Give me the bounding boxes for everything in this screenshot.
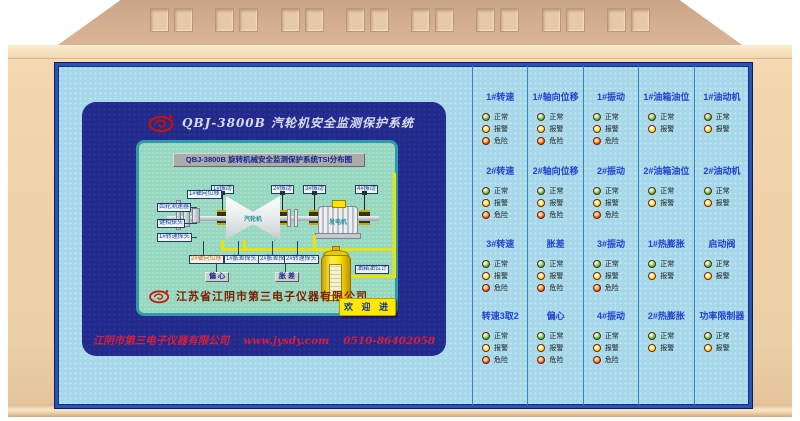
indicator-group: 2#转速正常报警危险: [473, 165, 527, 221]
led-row: 危险: [528, 209, 582, 221]
led-label: 正常: [605, 112, 619, 122]
vent-row: [150, 8, 650, 32]
leader-line: [185, 223, 197, 224]
danger-led-icon: [593, 137, 601, 145]
led-row: 危险: [473, 209, 527, 221]
alarm-led-icon: [704, 344, 712, 352]
leader-line: [238, 241, 239, 255]
normal-led-icon: [537, 113, 545, 121]
alarm-led-icon: [537, 344, 545, 352]
led-label: 正常: [660, 331, 674, 341]
normal-led-icon: [593, 187, 601, 195]
led-label: 正常: [605, 331, 619, 341]
indicator-group-title: 3#振动: [584, 238, 638, 250]
brand-logo-icon: [148, 114, 175, 133]
front-flange: [192, 208, 200, 223]
indicator-group: 转速3取2正常报警危险: [473, 310, 527, 366]
normal-led-icon: [648, 187, 656, 195]
led-label: 报警: [716, 198, 730, 208]
indicator-group: 3#振动正常报警危险: [584, 238, 638, 294]
vent-slot: [607, 8, 626, 32]
led-label: 正常: [549, 112, 563, 122]
leader-line: [203, 241, 204, 255]
indicator-group: 1#热膨胀正常报警: [639, 238, 693, 282]
led-row: 正常: [639, 185, 693, 197]
led-row: 报警: [584, 123, 638, 135]
led-label: 危险: [605, 210, 619, 220]
indicator-group-title: 2#油动机: [695, 165, 749, 177]
indicator-group-title: 1#油箱油位: [639, 91, 693, 103]
indicator-group-title: 2#轴向位移: [528, 165, 582, 177]
probe-label: 齿轮测速器: [157, 203, 191, 212]
oil-pipe: [313, 235, 316, 249]
indicator-column: 1#转速正常报警危险2#转速正常报警危险3#转速正常报警危险转速3取2正常报警危…: [472, 66, 527, 405]
vent-group: [411, 8, 454, 32]
led-row: 正常: [695, 258, 749, 270]
screen-footer-line: 江阴市第三电子仪器有限公司www.jysdy.com0510-86402058: [82, 333, 446, 348]
led-row: 正常: [639, 330, 693, 342]
led-label: 报警: [660, 271, 674, 281]
alarm-led-icon: [648, 344, 656, 352]
indicator-group: 2#振动正常报警危险: [584, 165, 638, 221]
led-row: 报警: [639, 342, 693, 354]
sensor-pin: [222, 192, 223, 211]
led-row: 正常: [584, 330, 638, 342]
led-label: 报警: [660, 124, 674, 134]
indicator-group-title: 启动阀: [695, 238, 749, 250]
alarm-led-icon: [593, 344, 601, 352]
device-top-lid: [55, 0, 745, 47]
danger-led-icon: [537, 284, 545, 292]
indicator-column: 1#轴向位移正常报警危险2#轴向位移正常报警危险胀差正常报警危险偏心正常报警危险: [527, 66, 582, 405]
alarm-led-icon: [704, 272, 712, 280]
led-row: 报警: [528, 123, 582, 135]
indicator-group-title: 偏心: [528, 310, 582, 322]
vent-slot: [435, 8, 454, 32]
led-row: 危险: [473, 282, 527, 294]
normal-led-icon: [593, 260, 601, 268]
indicator-group: 2#轴向位移正常报警危险: [528, 165, 582, 221]
led-label: 危险: [549, 355, 563, 365]
led-row: 正常: [528, 258, 582, 270]
alarm-led-icon: [648, 272, 656, 280]
led-label: 报警: [494, 271, 508, 281]
crt-screen: QBJ-3800B 汽轮机安全监测保护系统 QBJ-3800B 旋转机械安全监测…: [82, 102, 446, 356]
led-label: 报警: [716, 343, 730, 353]
normal-led-icon: [593, 113, 601, 121]
led-row: 报警: [695, 197, 749, 209]
led-label: 报警: [716, 271, 730, 281]
alarm-led-icon: [593, 199, 601, 207]
screen-header: QBJ-3800B 汽轮机安全监测保护系统: [82, 112, 446, 136]
coupling: [294, 209, 298, 227]
led-row: 报警: [639, 197, 693, 209]
front-top-band: [8, 45, 792, 59]
indicator-group: 功率限制器正常报警: [695, 310, 749, 354]
danger-led-icon: [593, 284, 601, 292]
vent-slot: [215, 8, 234, 32]
led-label: 正常: [716, 112, 730, 122]
normal-led-icon: [648, 260, 656, 268]
led-row: 报警: [528, 342, 582, 354]
indicator-group: 偏心正常报警危险: [528, 310, 582, 366]
normal-led-icon: [648, 113, 656, 121]
alarm-led-icon: [704, 199, 712, 207]
company-logo-icon: [147, 289, 172, 304]
led-label: 正常: [660, 259, 674, 269]
probe-label: 1#胀差探头: [224, 255, 259, 264]
led-label: 报警: [494, 198, 508, 208]
led-row: 正常: [639, 111, 693, 123]
indicator-group-title: 1#热膨胀: [639, 238, 693, 250]
normal-led-icon: [704, 260, 712, 268]
led-row: 正常: [528, 185, 582, 197]
led-row: 正常: [584, 111, 638, 123]
indicator-group: 2#油动机正常报警: [695, 165, 749, 209]
normal-led-icon: [648, 332, 656, 340]
led-row: 危险: [584, 354, 638, 366]
vent-slot: [305, 8, 324, 32]
indicator-group: 3#转速正常报警危险: [473, 238, 527, 294]
led-row: 报警: [584, 197, 638, 209]
indicator-group-title: 转速3取2: [473, 310, 527, 322]
indicator-group-title: 胀差: [528, 238, 582, 250]
indicator-group: 1#油动机正常报警: [695, 91, 749, 135]
normal-led-icon: [482, 332, 490, 340]
led-row: 报警: [695, 123, 749, 135]
alarm-led-icon: [593, 125, 601, 133]
vent-slot: [411, 8, 430, 32]
vent-slot: [476, 8, 495, 32]
alarm-led-icon: [648, 199, 656, 207]
probe-label: 1#转速探头: [157, 233, 192, 242]
indicator-group: 4#振动正常报警危险: [584, 310, 638, 366]
led-row: 报警: [473, 123, 527, 135]
led-label: 危险: [605, 283, 619, 293]
led-label: 正常: [716, 259, 730, 269]
vent-slot: [566, 8, 585, 32]
indicator-group-title: 1#转速: [473, 91, 527, 103]
alarm-led-icon: [537, 272, 545, 280]
indicator-column: 1#油箱油位正常报警2#油箱油位正常报警1#热膨胀正常报警2#热膨胀正常报警: [638, 66, 693, 405]
normal-led-icon: [482, 260, 490, 268]
vent-slot: [346, 8, 365, 32]
indicator-group-title: 功率限制器: [695, 310, 749, 322]
normal-led-icon: [537, 187, 545, 195]
vent-group: [476, 8, 519, 32]
led-label: 危险: [605, 355, 619, 365]
led-label: 正常: [549, 259, 563, 269]
led-label: 报警: [549, 124, 563, 134]
indicator-group-title: 2#转速: [473, 165, 527, 177]
led-label: 报警: [605, 271, 619, 281]
led-row: 报警: [584, 342, 638, 354]
led-row: 正常: [473, 330, 527, 342]
led-row: 报警: [473, 342, 527, 354]
vent-group: [607, 8, 650, 32]
danger-led-icon: [482, 137, 490, 145]
indicator-group-title: 1#振动: [584, 91, 638, 103]
danger-led-icon: [537, 356, 545, 364]
vent-slot: [150, 8, 169, 32]
alarm-led-icon: [537, 199, 545, 207]
led-label: 报警: [605, 198, 619, 208]
led-row: 危险: [528, 354, 582, 366]
vent-slot: [239, 8, 258, 32]
led-label: 正常: [494, 259, 508, 269]
footer-company: 江阴市第三电子仪器有限公司: [93, 335, 230, 347]
probe-label: 2#转速探头: [284, 255, 319, 264]
led-label: 正常: [494, 331, 508, 341]
indicator-group-title: 2#油箱油位: [639, 165, 693, 177]
led-label: 正常: [660, 186, 674, 196]
led-label: 危险: [494, 355, 508, 365]
indicator-group-title: 3#转速: [473, 238, 527, 250]
measure-box-label: 偏 心: [205, 272, 229, 282]
led-label: 正常: [716, 186, 730, 196]
vent-group: [150, 8, 193, 32]
vent-slot: [281, 8, 300, 32]
led-row: 正常: [473, 258, 527, 270]
oil-tank-cap: [332, 246, 340, 251]
alarm-led-icon: [704, 125, 712, 133]
normal-led-icon: [537, 260, 545, 268]
turbine-label: 汽轮机: [226, 214, 280, 223]
instrument-panel: QBJ-3800B 汽轮机安全监测保护系统 QBJ-3800B 旋转机械安全监测…: [55, 63, 752, 408]
indicator-columns: 1#转速正常报警危险2#转速正常报警危险3#转速正常报警危险转速3取2正常报警危…: [472, 66, 749, 405]
led-row: 正常: [473, 185, 527, 197]
danger-led-icon: [482, 284, 490, 292]
generator-top-box: [332, 200, 346, 208]
vent-slot: [500, 8, 519, 32]
vent-slot: [174, 8, 193, 32]
led-label: 正常: [549, 331, 563, 341]
tank-label: 油箱油位计: [355, 265, 389, 274]
led-row: 危险: [584, 282, 638, 294]
led-label: 正常: [716, 331, 730, 341]
coupling: [287, 209, 291, 227]
normal-led-icon: [537, 332, 545, 340]
led-row: 报警: [584, 270, 638, 282]
indicator-group: 1#振动正常报警危险: [584, 91, 638, 147]
sensor-pin: [282, 192, 283, 211]
led-label: 正常: [549, 186, 563, 196]
indicator-group: 2#油箱油位正常报警: [639, 165, 693, 209]
generator-base: [315, 233, 361, 239]
led-label: 报警: [549, 198, 563, 208]
led-label: 报警: [494, 124, 508, 134]
vent-slot: [370, 8, 389, 32]
vent-slot: [542, 8, 561, 32]
led-row: 报警: [639, 123, 693, 135]
led-row: 危险: [473, 354, 527, 366]
vent-group: [281, 8, 324, 32]
probe-label: 2#轴向位移: [189, 255, 224, 264]
normal-led-icon: [593, 332, 601, 340]
shaft-segment: [280, 216, 320, 221]
led-row: 危险: [528, 135, 582, 147]
led-label: 危险: [494, 136, 508, 146]
led-label: 正常: [494, 112, 508, 122]
indicator-group-title: 1#油动机: [695, 91, 749, 103]
led-row: 报警: [473, 197, 527, 209]
led-row: 报警: [695, 270, 749, 282]
led-label: 正常: [660, 112, 674, 122]
led-row: 危险: [584, 135, 638, 147]
shaft-segment: [358, 216, 379, 221]
normal-led-icon: [704, 332, 712, 340]
led-row: 危险: [473, 135, 527, 147]
indicator-group: 2#热膨胀正常报警: [639, 310, 693, 354]
led-row: 报警: [639, 270, 693, 282]
normal-led-icon: [482, 113, 490, 121]
indicator-group-title: 1#轴向位移: [528, 91, 582, 103]
leader-line: [285, 263, 286, 272]
sensor-pin: [364, 192, 365, 211]
normal-led-icon: [704, 187, 712, 195]
vent-group: [346, 8, 389, 32]
indicator-group: 胀差正常报警危险: [528, 238, 582, 294]
vent-slot: [631, 8, 650, 32]
led-row: 正常: [584, 258, 638, 270]
footer-phone: 0510-86402058: [343, 335, 435, 347]
device: QBJ-3800B 汽轮机安全监测保护系统 QBJ-3800B 旋转机械安全监测…: [0, 0, 800, 421]
led-label: 报警: [716, 124, 730, 134]
led-row: 正常: [695, 185, 749, 197]
indicator-column: 1#振动正常报警危险2#振动正常报警危险3#振动正常报警危险4#振动正常报警危险: [583, 66, 638, 405]
vent-group: [215, 8, 258, 32]
alarm-led-icon: [482, 272, 490, 280]
indicator-group: 1#油箱油位正常报警: [639, 91, 693, 135]
oil-pipe: [243, 240, 246, 249]
axial-displacement-label: 1#轴向位移: [187, 190, 222, 199]
indicator-group-title: 4#振动: [584, 310, 638, 322]
welcome-enter-button[interactable]: 欢 迎 进 入: [339, 298, 396, 316]
oil-pipe: [393, 173, 396, 278]
leader-line: [272, 241, 273, 255]
alarm-led-icon: [648, 125, 656, 133]
led-row: 报警: [473, 270, 527, 282]
alarm-led-icon: [482, 199, 490, 207]
company-row: 江苏省江阴市第三电子仪器有限公司: [147, 288, 368, 304]
indicator-group-title: 2#振动: [584, 165, 638, 177]
indicator-group: 1#轴向位移正常报警危险: [528, 91, 582, 147]
indicator-group: 1#转速正常报警危险: [473, 91, 527, 147]
led-label: 正常: [605, 259, 619, 269]
led-row: 正常: [639, 258, 693, 270]
vent-group: [542, 8, 585, 32]
alarm-led-icon: [482, 125, 490, 133]
led-label: 报警: [605, 343, 619, 353]
led-label: 报警: [660, 198, 674, 208]
led-row: 危险: [584, 209, 638, 221]
sensor-pin: [314, 192, 315, 211]
led-label: 报警: [549, 271, 563, 281]
danger-led-icon: [482, 356, 490, 364]
led-row: 报警: [695, 342, 749, 354]
oil-pipe: [221, 240, 224, 249]
led-label: 报警: [549, 343, 563, 353]
danger-led-icon: [593, 356, 601, 364]
led-label: 危险: [605, 136, 619, 146]
display-area: QBJ-3800B 旋转机械安全监测保护系统TSI分布图 1#振动2#振动3#振…: [136, 140, 398, 316]
led-row: 正常: [584, 185, 638, 197]
oil-pipe: [221, 248, 396, 251]
led-row: 正常: [473, 111, 527, 123]
led-label: 报警: [605, 124, 619, 134]
led-label: 危险: [549, 210, 563, 220]
led-row: 报警: [528, 197, 582, 209]
led-row: 正常: [528, 330, 582, 342]
led-label: 报警: [494, 343, 508, 353]
measure-box-label: 胀 差: [275, 272, 299, 282]
led-label: 危险: [494, 210, 508, 220]
led-label: 危险: [549, 136, 563, 146]
normal-led-icon: [482, 187, 490, 195]
screen-title: QBJ-3800B 汽轮机安全监测保护系统: [182, 114, 432, 131]
led-label: 报警: [660, 343, 674, 353]
led-label: 正常: [605, 186, 619, 196]
alarm-led-icon: [593, 272, 601, 280]
footer-website: www.jysdy.com: [243, 335, 329, 347]
leader-line: [297, 241, 298, 255]
led-row: 正常: [695, 330, 749, 342]
probe-label: 键相探头: [157, 219, 185, 228]
danger-led-icon: [593, 211, 601, 219]
led-label: 危险: [549, 283, 563, 293]
danger-led-icon: [537, 211, 545, 219]
led-row: 正常: [695, 111, 749, 123]
leader-line: [216, 263, 217, 272]
alarm-led-icon: [482, 344, 490, 352]
led-row: 正常: [528, 111, 582, 123]
generator-label: 发电机: [318, 217, 358, 226]
led-label: 危险: [494, 283, 508, 293]
danger-led-icon: [537, 137, 545, 145]
alarm-led-icon: [537, 125, 545, 133]
indicator-group: 启动阀正常报警: [695, 238, 749, 282]
normal-led-icon: [704, 113, 712, 121]
led-row: 危险: [528, 282, 582, 294]
oil-pipe: [350, 275, 396, 278]
danger-led-icon: [482, 211, 490, 219]
led-label: 正常: [494, 186, 508, 196]
indicator-group-title: 2#热膨胀: [639, 310, 693, 322]
indicator-column: 1#油动机正常报警2#油动机正常报警启动阀正常报警功率限制器正常报警: [694, 66, 749, 405]
led-row: 报警: [528, 270, 582, 282]
